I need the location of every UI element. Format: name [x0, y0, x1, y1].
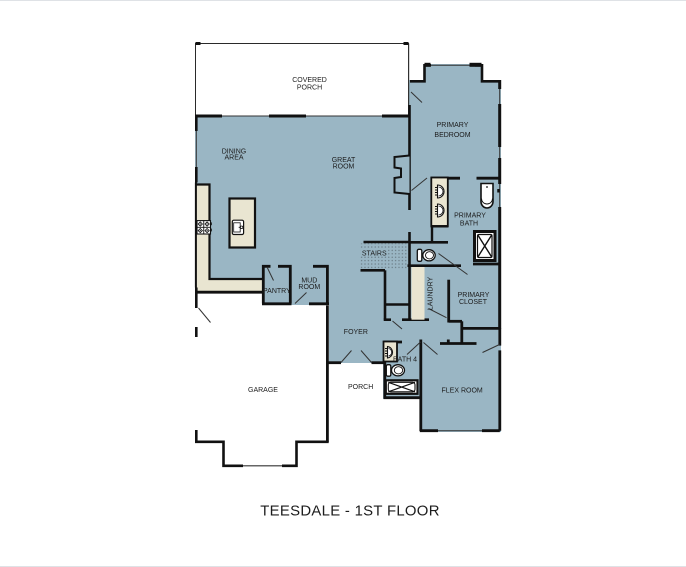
svg-text:BEDROOM: BEDROOM — [434, 132, 470, 139]
svg-text:CLOSET: CLOSET — [459, 299, 488, 306]
svg-text:PRIMARY: PRIMARY — [437, 122, 469, 129]
svg-text:COVERED: COVERED — [292, 77, 327, 84]
svg-text:PRIMARY: PRIMARY — [454, 212, 486, 219]
svg-text:STAIRS: STAIRS — [362, 250, 387, 257]
svg-text:GARAGE: GARAGE — [248, 387, 278, 394]
svg-text:PRIMARY: PRIMARY — [458, 292, 490, 299]
svg-text:PANTRY: PANTRY — [263, 288, 291, 295]
svg-text:FLEX ROOM: FLEX ROOM — [442, 388, 483, 395]
svg-text:ROOM: ROOM — [333, 164, 355, 171]
svg-text:PORCH: PORCH — [348, 384, 373, 391]
svg-text:TEESDALE - 1ST FLOOR: TEESDALE - 1ST FLOOR — [260, 504, 440, 520]
svg-text:PORCH: PORCH — [297, 84, 322, 91]
svg-text:ROOM: ROOM — [298, 284, 320, 291]
svg-text:AREA: AREA — [224, 155, 243, 162]
svg-text:BATH: BATH — [460, 220, 478, 227]
svg-text:FOYER: FOYER — [344, 329, 368, 336]
svg-text:LAUNDRY: LAUNDRY — [428, 277, 435, 311]
svg-text:BATH 4: BATH 4 — [393, 356, 417, 363]
